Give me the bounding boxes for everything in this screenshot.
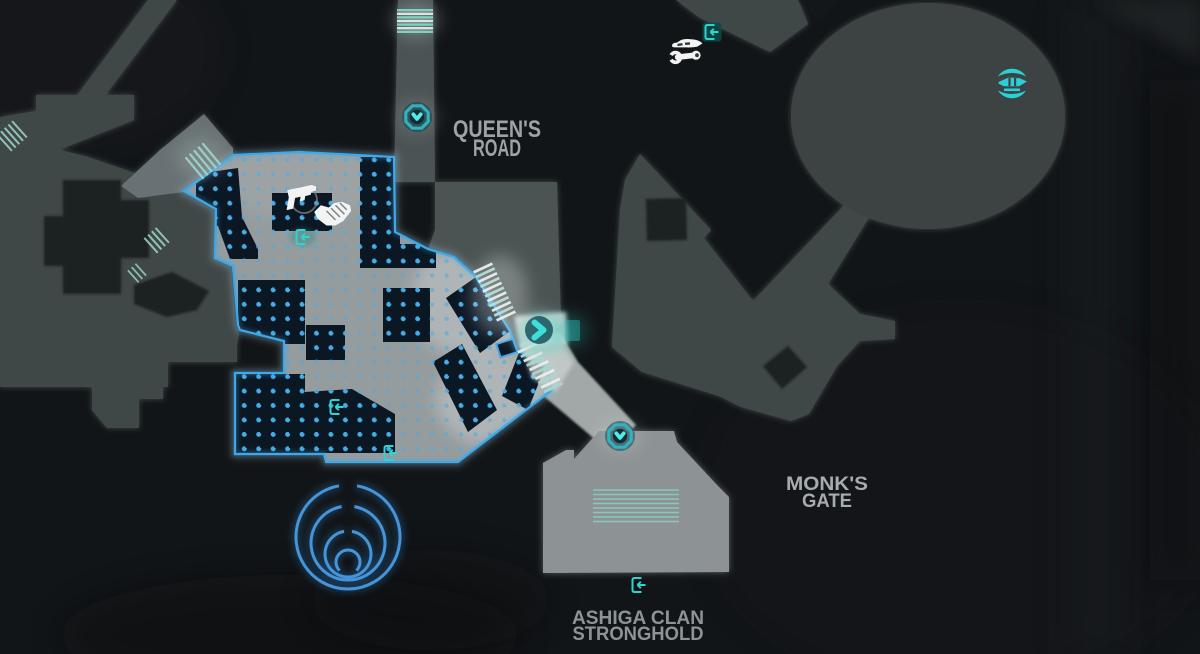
svg-text:ROAD: ROAD — [473, 135, 521, 162]
svg-text:GATE: GATE — [802, 491, 852, 512]
svg-text:STRONGHOLD: STRONGHOLD — [573, 624, 704, 645]
